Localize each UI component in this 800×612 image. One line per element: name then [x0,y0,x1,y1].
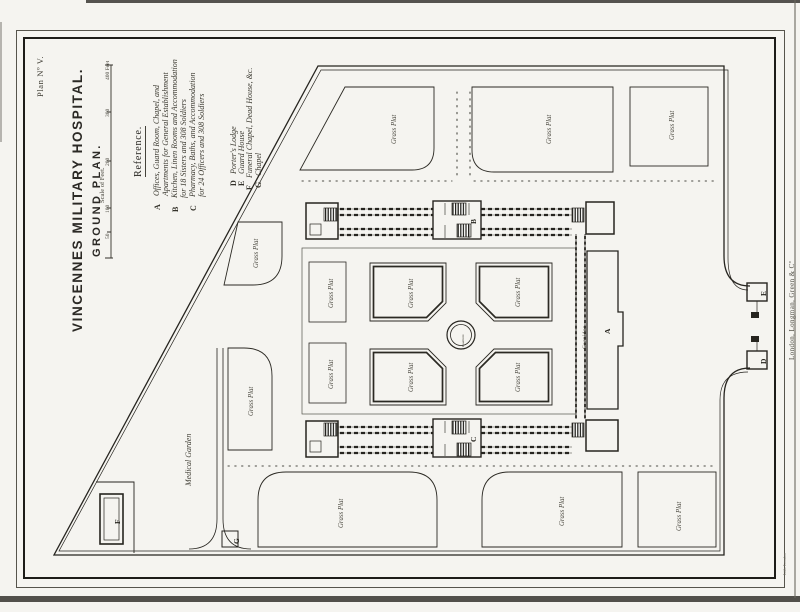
g-road [189,348,251,549]
central-court [302,248,576,414]
scanned-plate-page: Plan Nº V. VINCENNES MILITARY HOSPITAL. … [0,0,800,612]
ward-building-b [306,201,614,239]
f-enclosure [96,482,134,553]
grass-plats [224,87,716,547]
ward-building-c [306,419,618,457]
